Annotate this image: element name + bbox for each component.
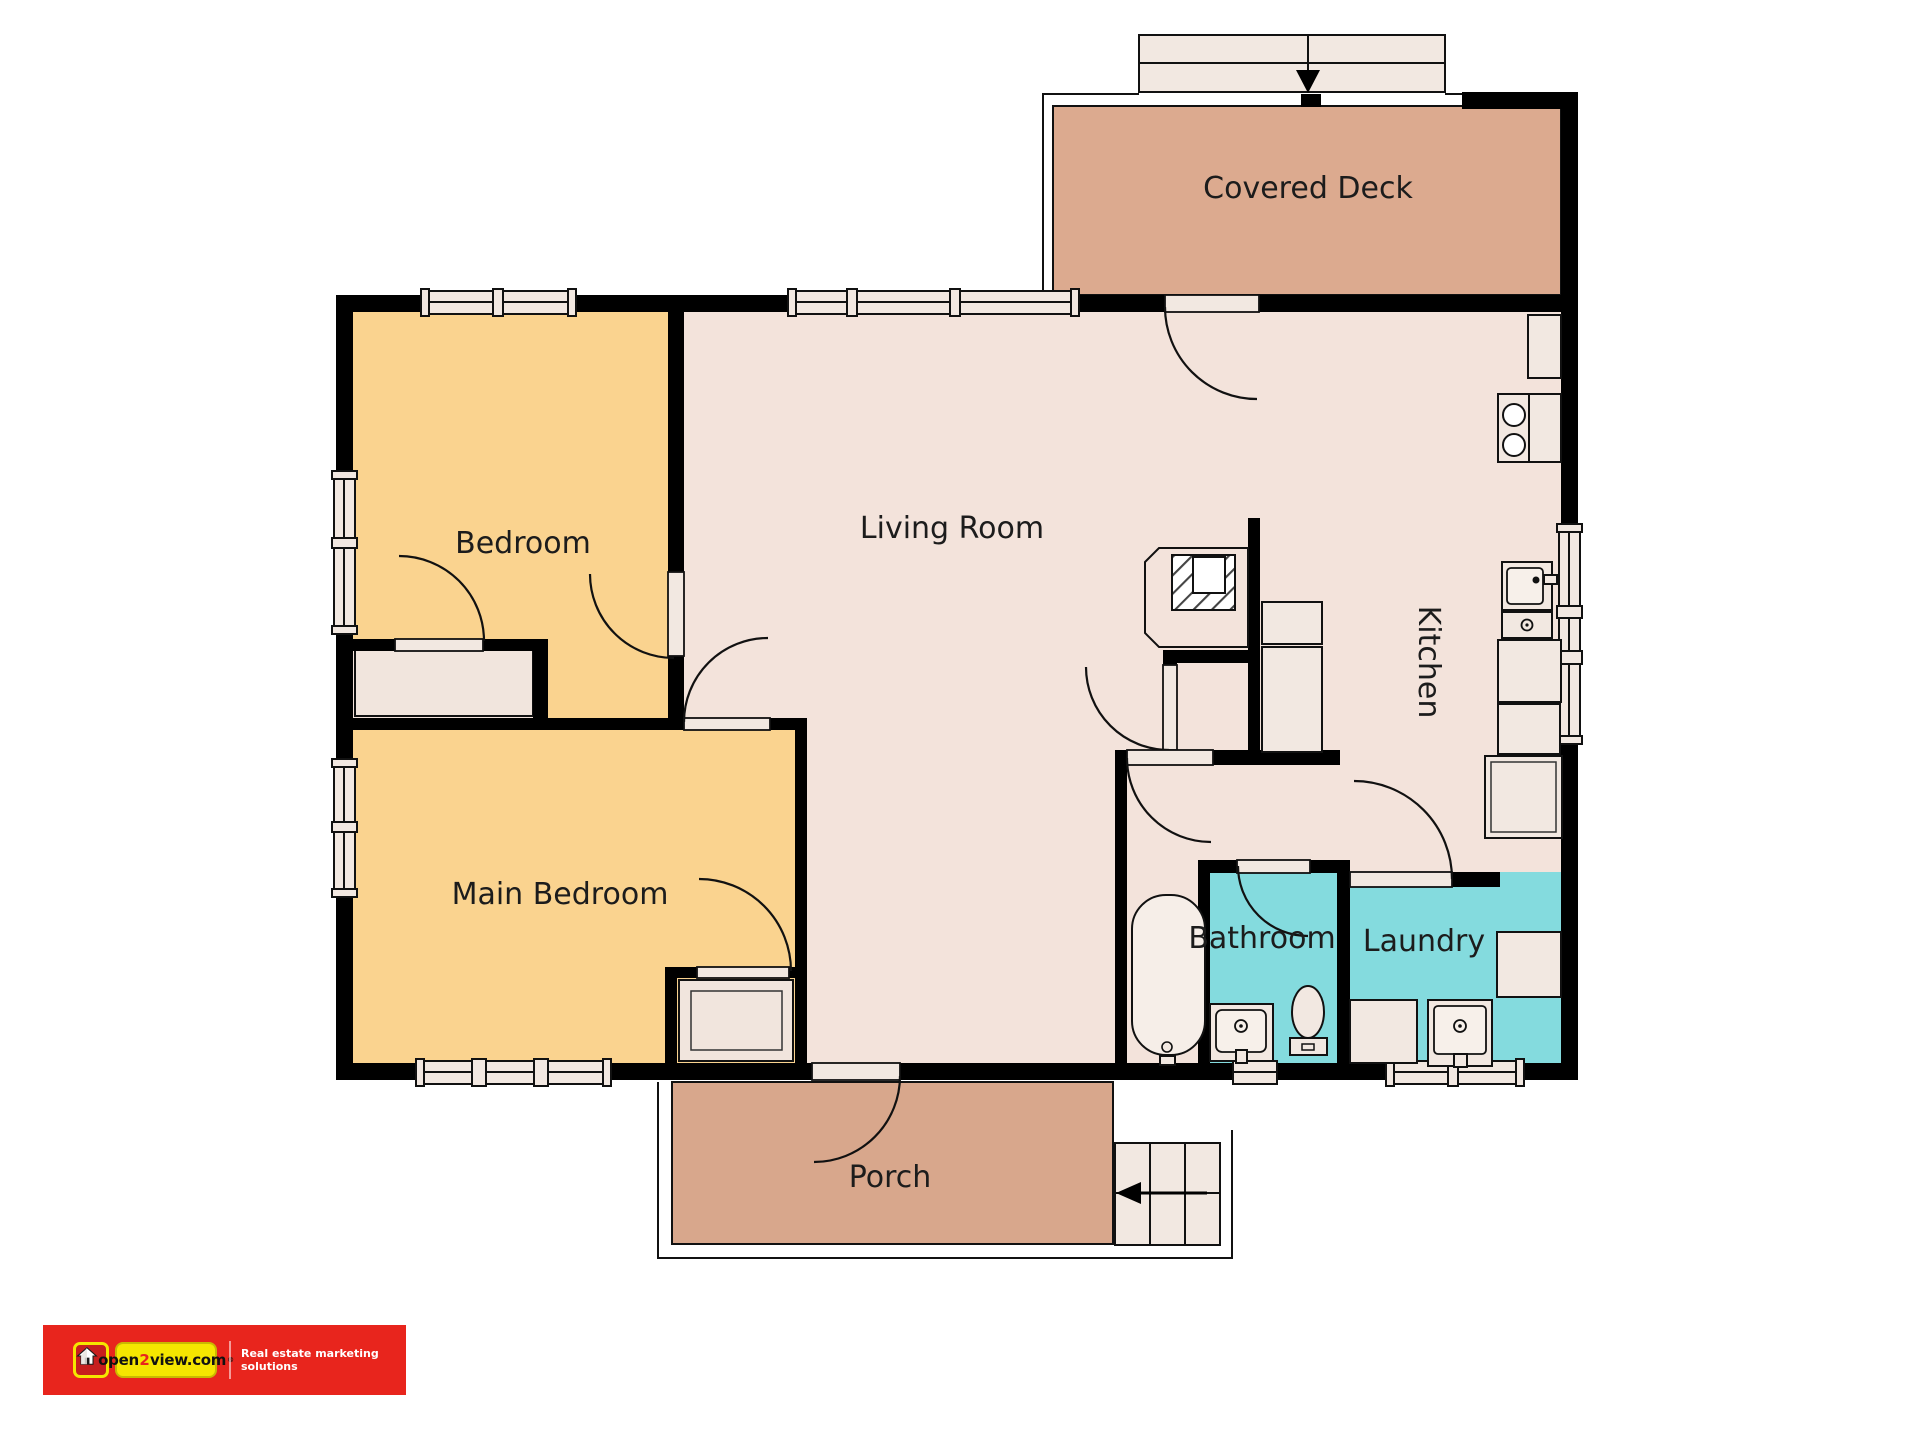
- washer: [1350, 1000, 1417, 1063]
- deck-stairs: [1139, 35, 1445, 107]
- pantry-cabinet: [1262, 647, 1322, 752]
- bathroom-sink: [1210, 1004, 1273, 1063]
- toilet: [1290, 986, 1327, 1055]
- stove: [1498, 394, 1561, 462]
- pantry-cabinet: [1262, 602, 1322, 644]
- laundry-label: Laundry: [1363, 924, 1485, 959]
- kitchen-cabinet: [1498, 704, 1560, 754]
- porch-stairs: [1115, 1143, 1220, 1245]
- fireplace: [1145, 548, 1248, 647]
- floor-plan-page: Covered Deck Bedroom Living Room Kitchen…: [0, 0, 1920, 1440]
- room-bedroom-floor: [353, 312, 668, 639]
- main-bedroom-closet: [679, 980, 793, 1061]
- laundry-sink: [1428, 1000, 1492, 1067]
- main-bedroom-window-bottom: [416, 1059, 611, 1086]
- kitchen-counter-top: [1528, 315, 1561, 378]
- bathroom-window: [1233, 1061, 1277, 1084]
- bedroom-window: [421, 289, 576, 316]
- kitchen-sink: [1502, 562, 1557, 610]
- porch: [658, 1082, 1232, 1258]
- living-room-window-top: [788, 289, 1079, 316]
- bathroom-label: Bathroom: [1188, 921, 1335, 956]
- kitchen-cabinet: [1498, 640, 1561, 702]
- open2view-wordmark: open2view.com®: [115, 1342, 217, 1378]
- covered-deck: [1043, 35, 1578, 295]
- open2view-logo: open2view.com® Real estate marketing sol…: [43, 1325, 406, 1395]
- brand-digit: 2: [139, 1351, 150, 1369]
- bedroom-label: Bedroom: [455, 526, 591, 561]
- main-bedroom-window-left: [332, 759, 357, 897]
- porch-label: Porch: [849, 1160, 932, 1195]
- fridge: [1485, 756, 1562, 838]
- brand-prefix: open: [98, 1351, 139, 1369]
- covered-deck-label: Covered Deck: [1203, 171, 1413, 206]
- bedroom-closet: [355, 650, 533, 716]
- kitchen-label: Kitchen: [1411, 606, 1446, 719]
- floor-plan-drawing: Covered Deck Bedroom Living Room Kitchen…: [0, 0, 1920, 1440]
- brand-suffix: view.com: [150, 1351, 226, 1369]
- living-room-label: Living Room: [860, 511, 1044, 546]
- main-bedroom-label: Main Bedroom: [452, 877, 669, 912]
- logo-divider: [229, 1341, 231, 1379]
- laundry-counter: [1497, 932, 1561, 997]
- logo-tagline: Real estate marketing solutions: [241, 1325, 403, 1395]
- bedroom-window-left: [332, 471, 357, 634]
- kitchen-drawer: [1502, 612, 1552, 638]
